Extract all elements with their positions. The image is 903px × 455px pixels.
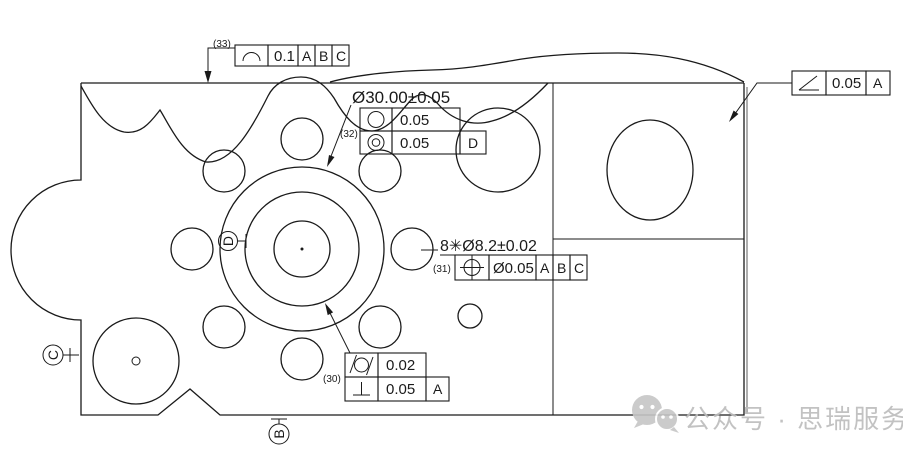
perpendicularity-icon [353,382,370,395]
position-datum-b: B [557,260,566,276]
perpendicularity-tolerance: 0.05 [386,381,415,398]
pattern-hole [391,228,433,270]
datum-d-letter: D [220,236,236,246]
profile-datum-a: A [302,48,312,64]
right-block-hole [607,120,693,220]
profile-datum-b: B [319,48,328,64]
angularity-datum-a: A [873,75,883,91]
wechat-icon [632,395,679,433]
pattern-hole [203,150,245,192]
bore-circles [220,167,384,331]
pattern-hole [359,150,401,192]
holes-dimension-text: 8✳Ø8.2±0.02 [440,238,537,255]
datum-target-d: D [219,232,247,251]
lower-left-hole [93,318,179,404]
profile-of-line-icon [243,53,260,62]
watermark: 公众号 · 思瑞服务 [632,395,903,434]
cylindricity-tolerance: 0.02 [386,357,415,374]
position-datum-c: C [574,260,584,276]
pattern-hole [171,228,213,270]
group30-id: (30) [323,374,341,385]
hole-pattern-callout: 8✳Ø8.2±0.02 (31) Ø0.05 A B C [421,238,587,280]
angularity-tolerance: 0.05 [832,75,861,92]
concentricity-icon [368,135,384,151]
datum-c-letter: C [45,350,61,360]
pattern-hole [359,306,401,348]
position-icon [460,256,484,280]
datum-c-attach [63,348,79,362]
drawing-svg: (33) 0.1 A B C Ø30.00±0.05 (32) 0.05 0.0… [0,0,903,455]
concentricity-datum-d: D [468,135,478,151]
angularity-frame: 0.05 A [729,71,890,122]
bore-leader-arrow [327,155,335,167]
angularity-leader-arrow [729,111,738,123]
top-back-edge [330,53,744,82]
profile-leader-arrow [205,71,212,83]
cylindricity-frame: (30) 0.02 0.05 A [323,303,449,401]
circularity-tolerance: 0.05 [400,112,429,129]
cylindricity-leader [327,307,350,353]
bore-center-dot [301,248,304,251]
concentricity-tolerance: 0.05 [400,135,429,152]
profile-line-frame: (33) 0.1 A B C [205,39,350,83]
profile-leader [208,48,235,78]
position-tolerance: Ø0.05 [493,260,534,277]
cylindricity-icon [350,355,373,375]
perpendicularity-datum-a: A [433,381,443,397]
datum-target-c: C [43,345,79,365]
part-outline [11,53,747,415]
pattern-hole [281,338,323,380]
position-frame-id: (31) [433,264,451,275]
angularity-icon [799,76,819,90]
angularity-leader [732,83,792,118]
datum-b-attach [271,419,287,424]
pattern-hole [281,118,323,160]
cylindricity-leader-arrow [325,303,333,315]
bore-dimension-text: Ø30.00±0.05 [352,88,450,107]
position-datum-a: A [540,260,550,276]
profile-tolerance: 0.1 [274,48,295,65]
pattern-hole [203,306,245,348]
datum-b-letter: B [271,429,287,438]
datum-target-b: B [269,419,289,444]
circularity-icon [368,112,384,128]
profile-datum-c: C [336,48,346,64]
small-hole [458,304,482,328]
group32-id: (32) [340,129,358,140]
lower-left-hole-center [132,357,140,365]
engineering-drawing-canvas: (33) 0.1 A B C Ø30.00±0.05 (32) 0.05 0.0… [0,0,903,455]
watermark-text: 公众号 · 思瑞服务 [684,404,903,434]
